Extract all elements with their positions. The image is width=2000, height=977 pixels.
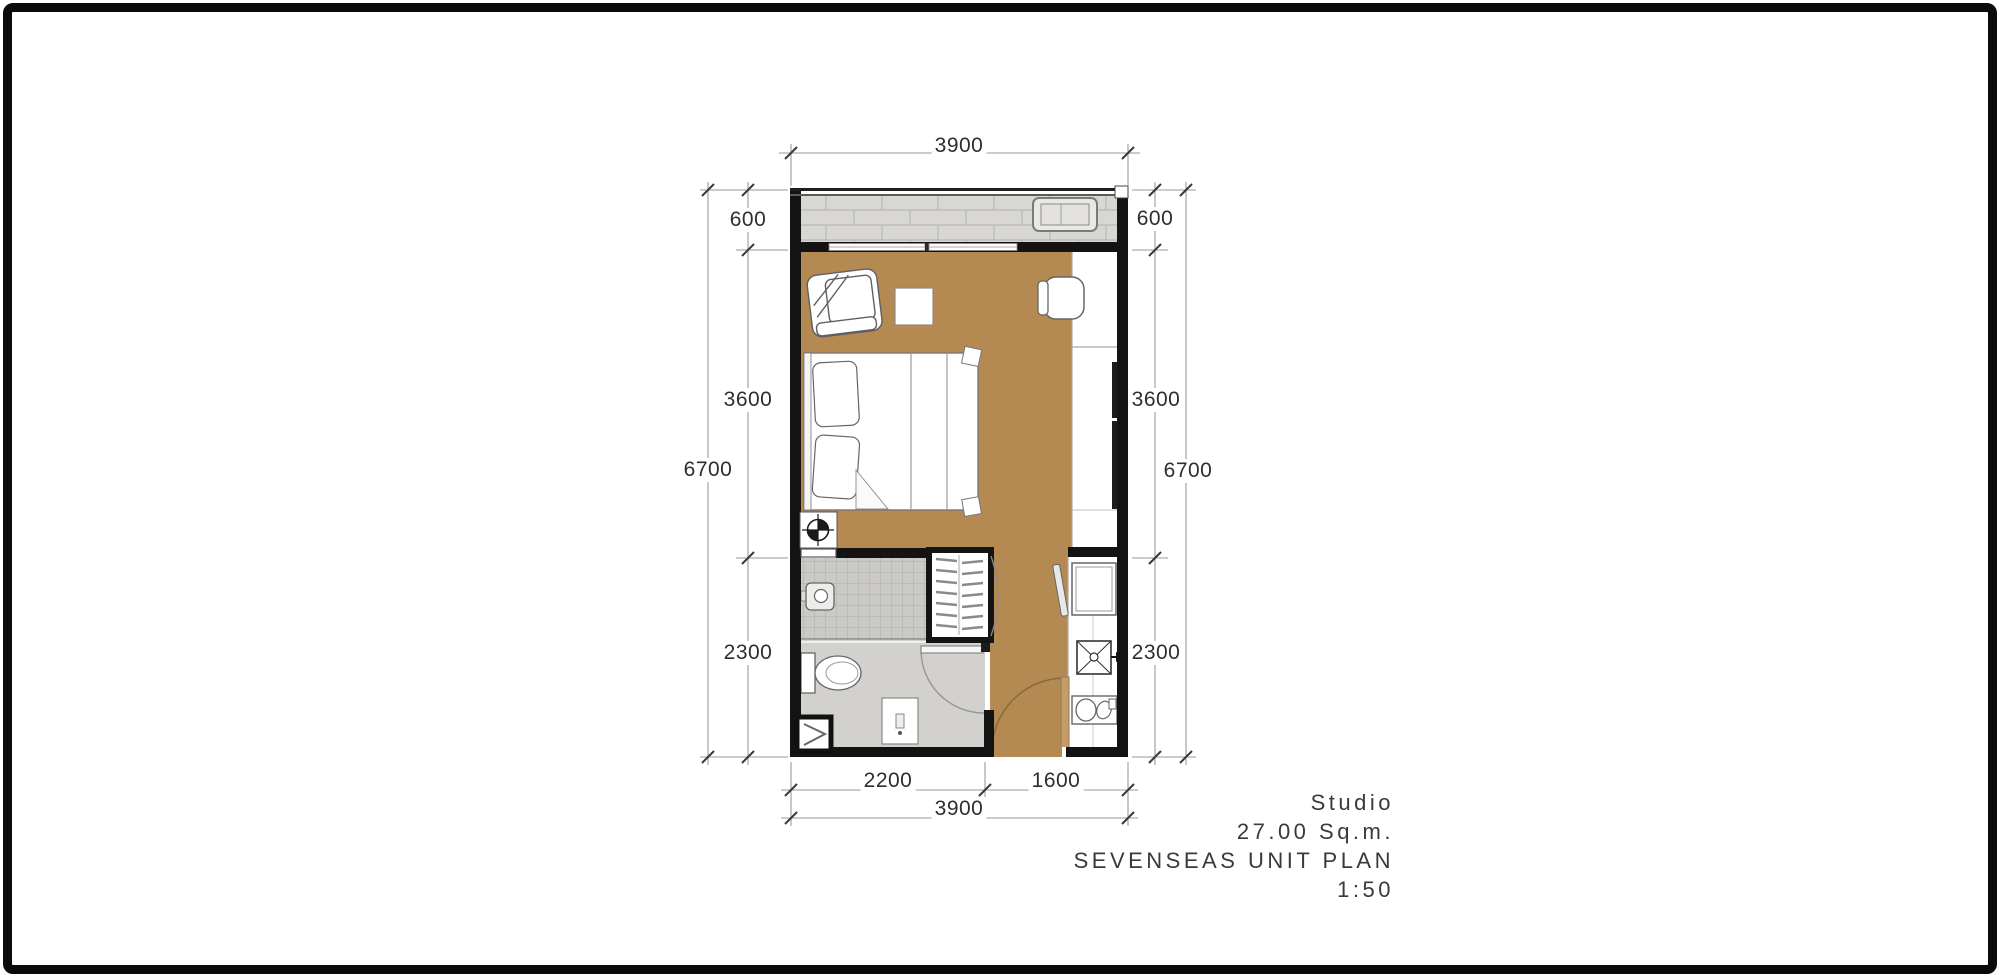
title-block: Studio 27.00 Sq.m. SEVENSEAS UNIT PLAN 1… — [974, 788, 1394, 904]
vanity-counter — [882, 698, 918, 744]
plan-scale-label: 1:50 — [974, 875, 1394, 904]
column-marker-icon — [800, 512, 837, 548]
unit-type-label: Studio — [974, 788, 1394, 817]
unit-area-label: 27.00 Sq.m. — [974, 817, 1394, 846]
plan-name-label: SEVENSEAS UNIT PLAN — [974, 846, 1394, 875]
dim-left-total: 6700 — [681, 458, 736, 482]
ac-unit — [1033, 198, 1097, 231]
dim-right-balcony: 600 — [1134, 207, 1177, 231]
balcony — [801, 196, 1117, 242]
dim-left-bath: 2300 — [721, 641, 776, 665]
dim-left-balcony: 600 — [727, 208, 770, 232]
dim-left-living: 3600 — [721, 388, 776, 412]
shaft-icon — [797, 717, 831, 751]
side-table — [895, 288, 933, 325]
desk-chair — [1038, 277, 1084, 319]
armchair — [806, 268, 883, 338]
dim-right-total: 6700 — [1161, 459, 1216, 483]
floor-plan-page: 3900 600 3600 2300 6700 600 3600 2300 67… — [0, 0, 2000, 977]
pillow — [812, 361, 859, 427]
stove — [1072, 696, 1117, 724]
pillow — [812, 435, 860, 500]
sliding-window — [829, 243, 1017, 251]
bed — [804, 346, 982, 516]
wardrobe — [929, 550, 998, 640]
wash-basin — [801, 583, 834, 610]
refrigerator — [1072, 563, 1116, 615]
dim-right-kitchen: 2300 — [1129, 641, 1184, 665]
dim-right-living: 3600 — [1129, 388, 1184, 412]
dim-top-width: 3900 — [932, 134, 987, 158]
dim-bottom-bath: 2200 — [861, 769, 916, 793]
toilet — [801, 653, 861, 693]
